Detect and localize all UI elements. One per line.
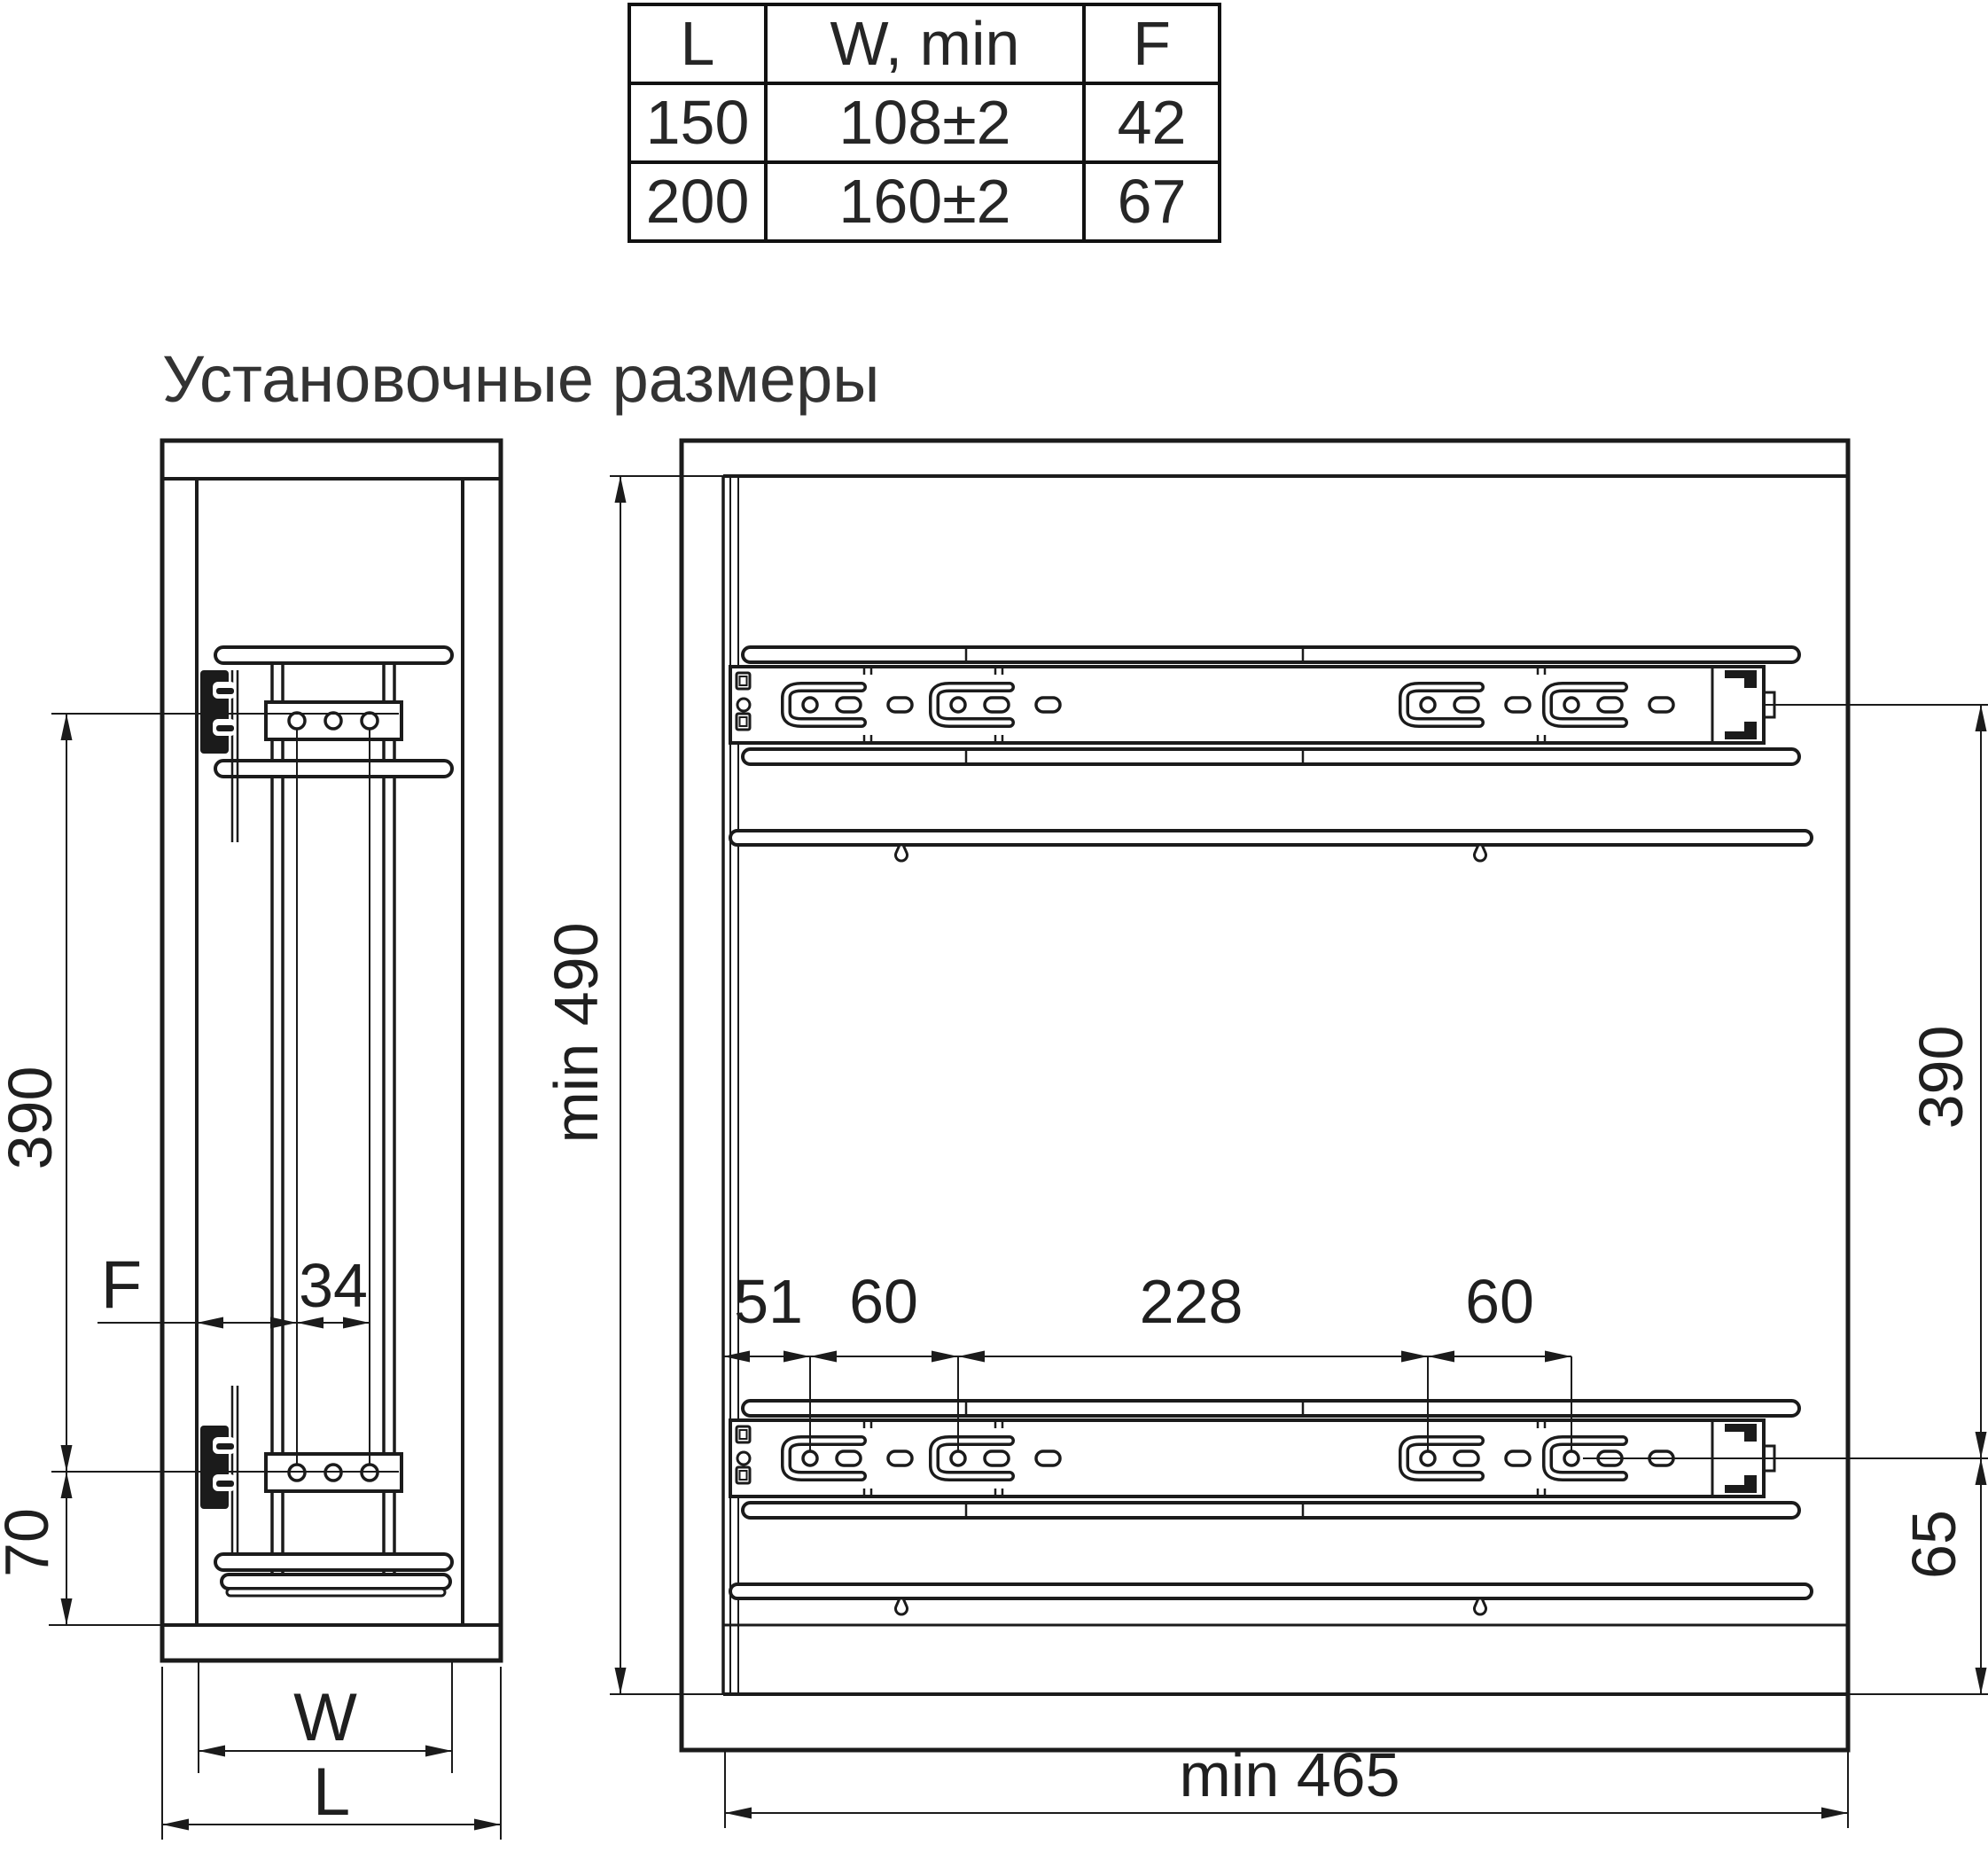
dim-label-60-front-side: 60 [849, 1270, 918, 1332]
dim-label-W-front: W [293, 1684, 357, 1752]
spec-table-cell: 150 [631, 85, 768, 164]
front-view-drawing [49, 441, 501, 1840]
spec-value: 108±2 [838, 89, 1010, 157]
spec-table-header-W-label: W, min [830, 10, 1020, 78]
dim-label-min490-side: min 490 [545, 922, 607, 1143]
dim-label-F-front: F [101, 1252, 142, 1319]
spec-table-cell: 108±2 [768, 85, 1086, 164]
spec-value: 200 [646, 168, 750, 236]
spec-table-cell: 67 [1086, 164, 1218, 239]
dim-label-390-side: 390 [1910, 1026, 1972, 1129]
dim-label-228-side: 228 [1140, 1270, 1243, 1332]
drawing-page: L W, min F 150 108±2 42 200 160±2 67 Уст… [0, 0, 1988, 1852]
dim-label-60-rear-side: 60 [1465, 1270, 1534, 1332]
dim-label-L-front: L [313, 1759, 350, 1826]
spec-table: L W, min F 150 108±2 42 200 160±2 67 [628, 3, 1221, 243]
spec-table-cell: 42 [1086, 85, 1218, 164]
dim-label-51-side: 51 [734, 1270, 803, 1332]
spec-table-header-F: F [1086, 6, 1218, 85]
pullout-basket-front [215, 647, 452, 1596]
dim-label-390-front: 390 [0, 1067, 61, 1170]
spec-value: 42 [1118, 89, 1187, 157]
dim-label-65-side: 65 [1903, 1510, 1965, 1579]
spec-value: 160±2 [838, 168, 1010, 236]
spec-value: 67 [1118, 168, 1187, 236]
technical-drawing-canvas [0, 0, 1988, 1852]
spec-table-cell: 160±2 [768, 164, 1086, 239]
spec-table-header-F-label: F [1133, 10, 1171, 78]
spec-table-header-L: L [631, 6, 768, 85]
spec-table-cell: 200 [631, 164, 768, 239]
dim-label-34-front: 34 [299, 1254, 368, 1317]
drawer-slide-top [730, 647, 1812, 861]
slide-rail-profiles-front [200, 670, 236, 1509]
spec-table-header-L-label: L [681, 10, 715, 78]
dim-label-70-front: 70 [0, 1508, 58, 1577]
drawer-slide-bottom [730, 1401, 1812, 1614]
spec-table-header-W: W, min [768, 6, 1086, 85]
page-title: Установочные размеры [162, 341, 879, 417]
spec-value: 150 [646, 89, 750, 157]
side-view-drawing [610, 441, 1988, 1828]
dim-label-min465-side: min 465 [1179, 1744, 1399, 1806]
cabinet-side-outline [682, 441, 1848, 1750]
